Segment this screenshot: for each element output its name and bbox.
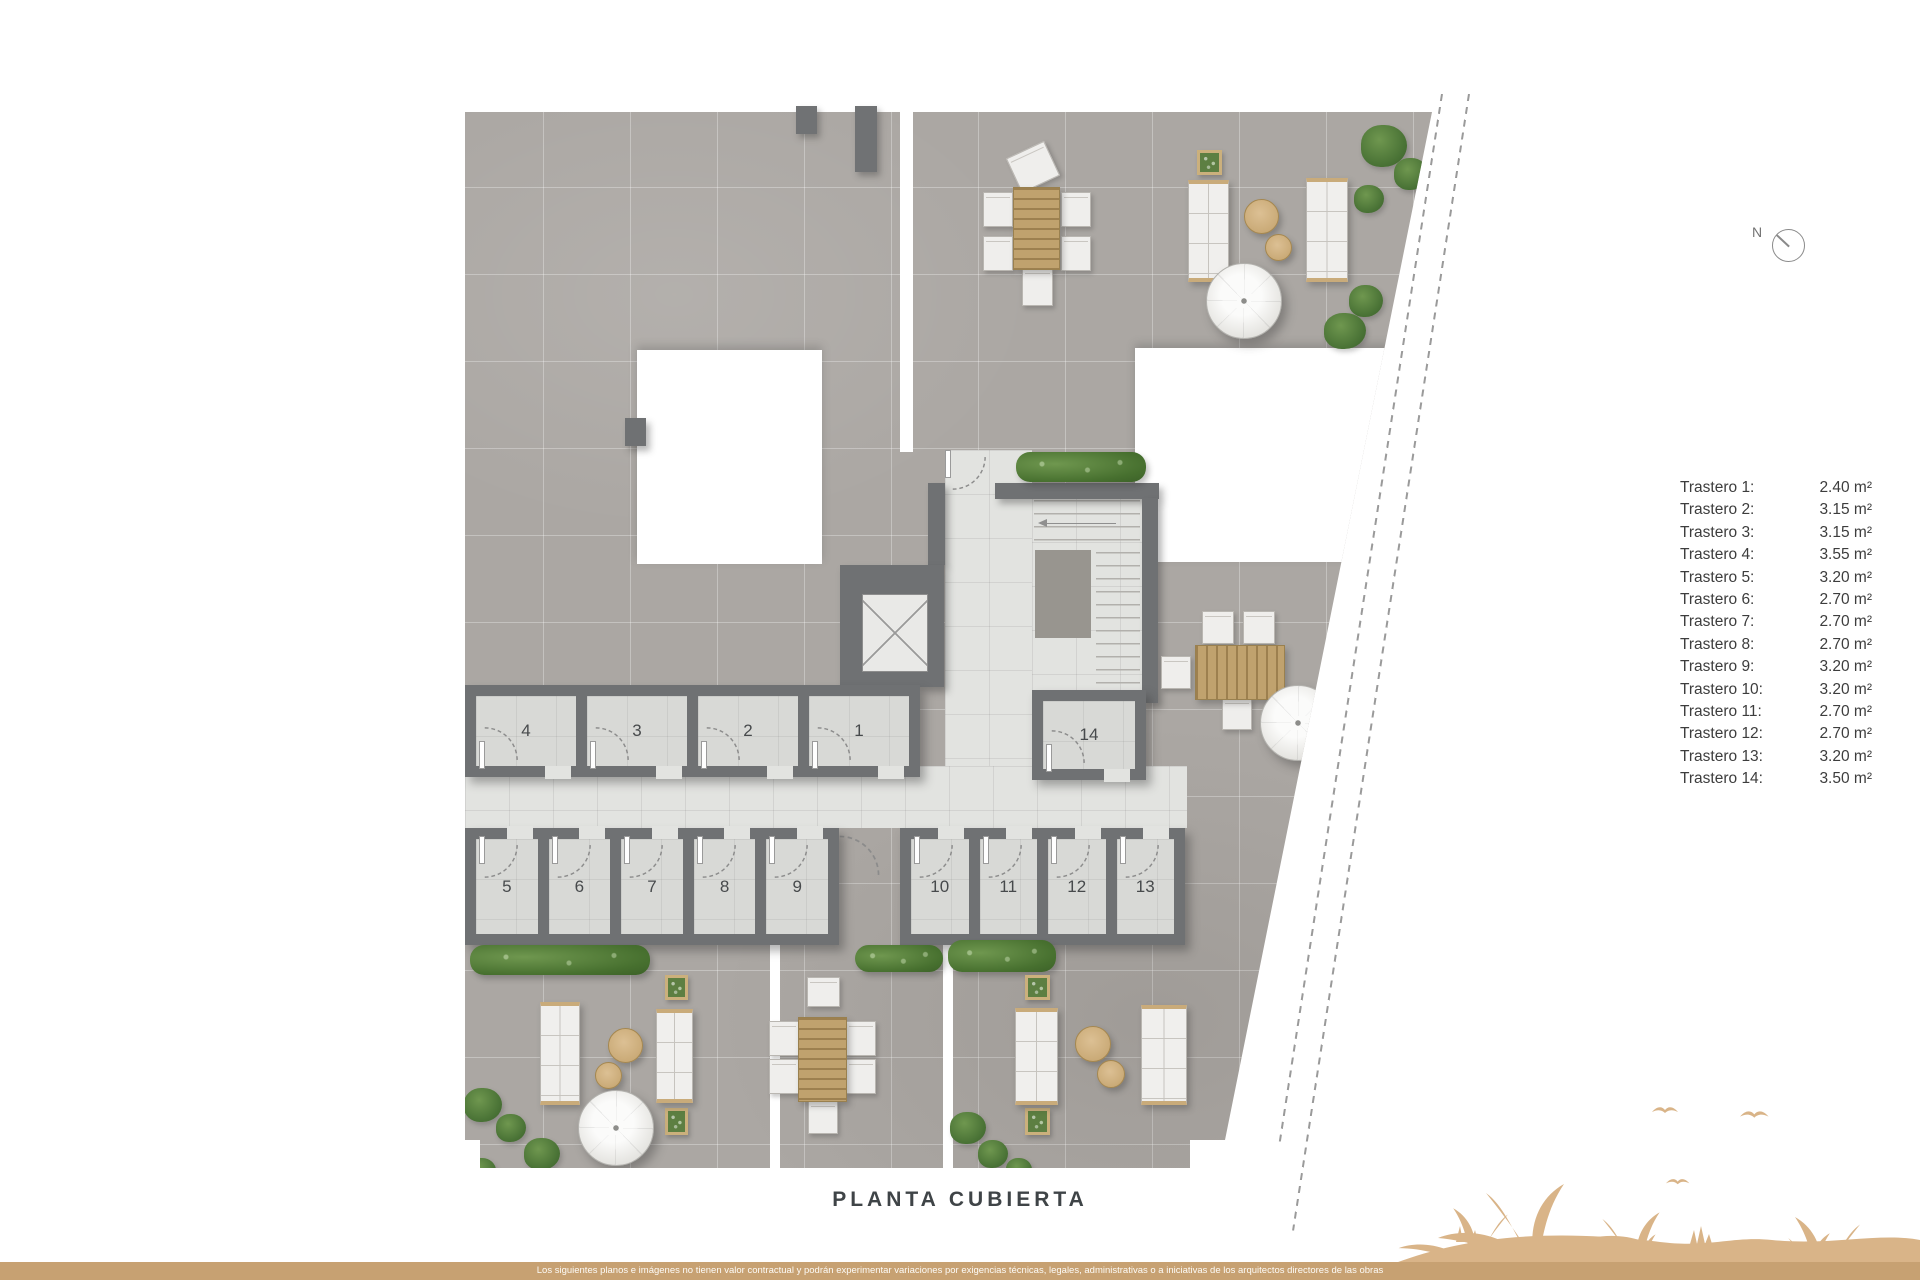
storage-block-bottom-left: 56789 [465, 828, 839, 945]
legend-row: Trastero 1:2.40 m² [1680, 477, 1872, 499]
planter-box [1197, 150, 1222, 175]
door-swing-arc [1052, 840, 1092, 880]
passage-door-arc [834, 833, 882, 881]
stair-direction-arrow [1040, 523, 1116, 524]
room-number-label: 3 [632, 721, 641, 741]
door-swing-arc [984, 840, 1024, 880]
legend-value: 3.50 m² [1819, 768, 1872, 790]
side-table [1265, 234, 1292, 261]
door-leaf [1046, 744, 1052, 772]
parasol [1206, 263, 1282, 339]
door-leaf [914, 836, 920, 864]
legend-label: Trastero 8: [1680, 634, 1754, 656]
door-swing-arc [480, 840, 520, 880]
door-swing-arc [698, 840, 738, 880]
hedge-bottom-right [948, 940, 1056, 972]
legend-label: Trastero 3: [1680, 522, 1754, 544]
legend-value: 2.70 m² [1819, 634, 1872, 656]
door-opening [938, 826, 964, 839]
hedge-bottom-left [470, 945, 650, 975]
door-leaf [1051, 836, 1057, 864]
sun-lounger-pair [1306, 178, 1348, 282]
legend-row: Trastero 14:3.50 m² [1680, 768, 1872, 790]
legend-row: Trastero 2:3.15 m² [1680, 499, 1872, 521]
door-swing-arc [1047, 728, 1087, 768]
legend-row: Trastero 10:3.20 m² [1680, 679, 1872, 701]
hedge-stair [1016, 452, 1146, 482]
door-opening [656, 766, 682, 779]
door-leaf [769, 836, 775, 864]
planter-box [1025, 975, 1050, 1000]
chimney-block [796, 106, 817, 134]
legend-value: 3.15 m² [1819, 522, 1872, 544]
chair [983, 236, 1013, 271]
door-leaf [812, 741, 818, 769]
chair [1243, 611, 1275, 644]
side-table [1075, 1026, 1111, 1062]
door-swing-arc [625, 840, 665, 880]
storage-room-11: 11 [980, 839, 1049, 934]
legend-row: Trastero 11:2.70 m² [1680, 701, 1872, 723]
chair [769, 1021, 799, 1056]
dining-table [1195, 645, 1285, 700]
legend-label: Trastero 14: [1680, 768, 1763, 790]
chair [1061, 192, 1091, 227]
dining-table [798, 1017, 847, 1102]
bush [468, 1158, 496, 1184]
terrace-divider-top [900, 112, 913, 452]
door-swing-arc [553, 840, 593, 880]
parasol [578, 1090, 654, 1166]
door-opening [507, 826, 533, 839]
storage-room-1: 1 [809, 696, 909, 766]
palm-trees-graphic [1360, 1020, 1920, 1265]
room-number-label: 4 [521, 721, 530, 741]
legend-label: Trastero 6: [1680, 589, 1754, 611]
storage-room-3: 3 [587, 696, 698, 766]
storage-block-14: 14 [1032, 690, 1146, 780]
sun-lounger-pair [1015, 1008, 1058, 1105]
legend-label: Trastero 4: [1680, 544, 1754, 566]
door-leaf [590, 741, 596, 769]
legend-row: Trastero 7:2.70 m² [1680, 611, 1872, 633]
legend-value: 2.40 m² [1819, 477, 1872, 499]
door-swing-arc [770, 840, 810, 880]
door-swing-arc [915, 840, 955, 880]
corridor-door-leaf [945, 450, 951, 478]
legend-label: Trastero 5: [1680, 567, 1754, 589]
legend-label: Trastero 12: [1680, 723, 1763, 745]
door-leaf [552, 836, 558, 864]
bush [1394, 158, 1428, 190]
door-opening [1104, 769, 1130, 782]
legend-value: 3.20 m² [1819, 656, 1872, 678]
chair [983, 192, 1013, 227]
side-table [1097, 1060, 1125, 1088]
door-opening [545, 766, 571, 779]
door-leaf [701, 741, 707, 769]
legend-row: Trastero 12:2.70 m² [1680, 723, 1872, 745]
storage-room-12: 12 [1048, 839, 1117, 934]
compass-icon [1772, 229, 1805, 262]
chair [1202, 611, 1234, 644]
parasol [1260, 685, 1336, 761]
compass-needle [1776, 234, 1790, 247]
plot-outline-top [457, 103, 1435, 104]
sun-lounger-pair [1188, 180, 1229, 282]
legend-label: Trastero 2: [1680, 499, 1754, 521]
legend-list: Trastero 1:2.40 m²Trastero 2:3.15 m²Tras… [1680, 477, 1872, 791]
storage-room-9: 9 [766, 839, 828, 934]
sun-lounger-pair [656, 1009, 693, 1103]
legend-label: Trastero 10: [1680, 679, 1763, 701]
legend-row: Trastero 3:3.15 m² [1680, 522, 1872, 544]
door-opening [1143, 826, 1169, 839]
roof-opening-right [1135, 348, 1395, 562]
chair [807, 977, 840, 1007]
door-opening [1075, 826, 1101, 839]
corridor-door-arc [948, 452, 988, 492]
sun-lounger-pair [1141, 1005, 1187, 1105]
storage-room-7: 7 [621, 839, 694, 934]
sun-lounger-pair [540, 1002, 580, 1105]
side-table [1244, 199, 1279, 234]
planter-box [665, 1108, 688, 1135]
plot-outline-left [457, 103, 458, 1143]
legend-row: Trastero 8:2.70 m² [1680, 634, 1872, 656]
planter-box [1025, 1108, 1050, 1135]
core-wall-right [1142, 498, 1158, 703]
door-swing-arc [813, 725, 853, 765]
room-number-label: 1 [854, 721, 863, 741]
storage-room-4: 4 [476, 696, 587, 766]
elevator-cabin [862, 594, 928, 672]
legend-value: 3.15 m² [1819, 499, 1872, 521]
chair [846, 1059, 876, 1094]
side-table [595, 1062, 622, 1089]
storage-room-2: 2 [698, 696, 809, 766]
planter-box [665, 975, 688, 1000]
legend-label: Trastero 13: [1680, 746, 1763, 768]
legend-value: 3.20 m² [1819, 679, 1872, 701]
chair [769, 1059, 799, 1094]
storage-room-10: 10 [911, 839, 980, 934]
storage-block-bottom-right: 10111213 [900, 828, 1185, 945]
chimney-block [855, 106, 877, 172]
door-opening [878, 766, 904, 779]
door-opening [1006, 826, 1032, 839]
door-leaf [983, 836, 989, 864]
storage-room-14: 14 [1043, 701, 1135, 769]
legend-value: 2.70 m² [1819, 723, 1872, 745]
legend-row: Trastero 9:3.20 m² [1680, 656, 1872, 678]
storage-room-6: 6 [549, 839, 622, 934]
legend-label: Trastero 1: [1680, 477, 1754, 499]
door-leaf [697, 836, 703, 864]
door-swing-arc [702, 725, 742, 765]
compass-north-label: N [1752, 224, 1762, 240]
door-leaf [479, 741, 485, 769]
legend-row: Trastero 13:3.20 m² [1680, 746, 1872, 768]
roof-opening-left [637, 350, 822, 564]
stair-treads-top [1034, 500, 1140, 552]
storage-room-5: 5 [476, 839, 549, 934]
chair [1061, 236, 1091, 271]
chair [1022, 268, 1053, 306]
door-swing-arc [1121, 840, 1161, 880]
chair [846, 1021, 876, 1056]
storage-block-top: 4321 [465, 685, 920, 777]
door-leaf [479, 836, 485, 864]
floor-plan-page: 4321 14 56789 10111213 [0, 0, 1920, 1280]
legend-row: Trastero 6:2.70 m² [1680, 589, 1872, 611]
dining-table [1013, 187, 1060, 270]
door-swing-arc [480, 725, 520, 765]
chair [1161, 656, 1191, 689]
door-leaf [624, 836, 630, 864]
storage-room-13: 13 [1117, 839, 1175, 934]
storage-room-8: 8 [694, 839, 767, 934]
room-number-label: 2 [743, 721, 752, 741]
legend-label: Trastero 11: [1680, 701, 1762, 723]
core-wall-left-stub [928, 483, 945, 565]
roof-opening-wall-stub [625, 418, 646, 446]
legend-value: 3.20 m² [1819, 567, 1872, 589]
side-table [608, 1028, 643, 1063]
legend-row: Trastero 4:3.55 m² [1680, 544, 1872, 566]
door-opening [724, 826, 750, 839]
core-wall-top [995, 483, 1159, 499]
legend-value: 2.70 m² [1819, 589, 1872, 611]
footer-disclaimer: Los siguientes planos e imágenes no tien… [0, 1265, 1920, 1276]
legend-label: Trastero 7: [1680, 611, 1754, 633]
hedge-bottom-middle [855, 945, 943, 972]
legend-value: 3.20 m² [1819, 746, 1872, 768]
legend-value: 2.70 m² [1819, 611, 1872, 633]
stair-landing [1035, 550, 1091, 638]
bush [1006, 1158, 1032, 1182]
door-opening [652, 826, 678, 839]
door-opening [767, 766, 793, 779]
legend-row: Trastero 5:3.20 m² [1680, 567, 1872, 589]
door-opening [797, 826, 823, 839]
legend-label: Trastero 9: [1680, 656, 1754, 678]
door-leaf [1120, 836, 1126, 864]
door-swing-arc [591, 725, 631, 765]
chair [1222, 698, 1252, 730]
legend-value: 3.55 m² [1819, 544, 1872, 566]
door-opening [579, 826, 605, 839]
legend-value: 2.70 m² [1819, 701, 1872, 723]
chair [808, 1101, 838, 1134]
terrace-divider-bottom-left [770, 945, 780, 1168]
